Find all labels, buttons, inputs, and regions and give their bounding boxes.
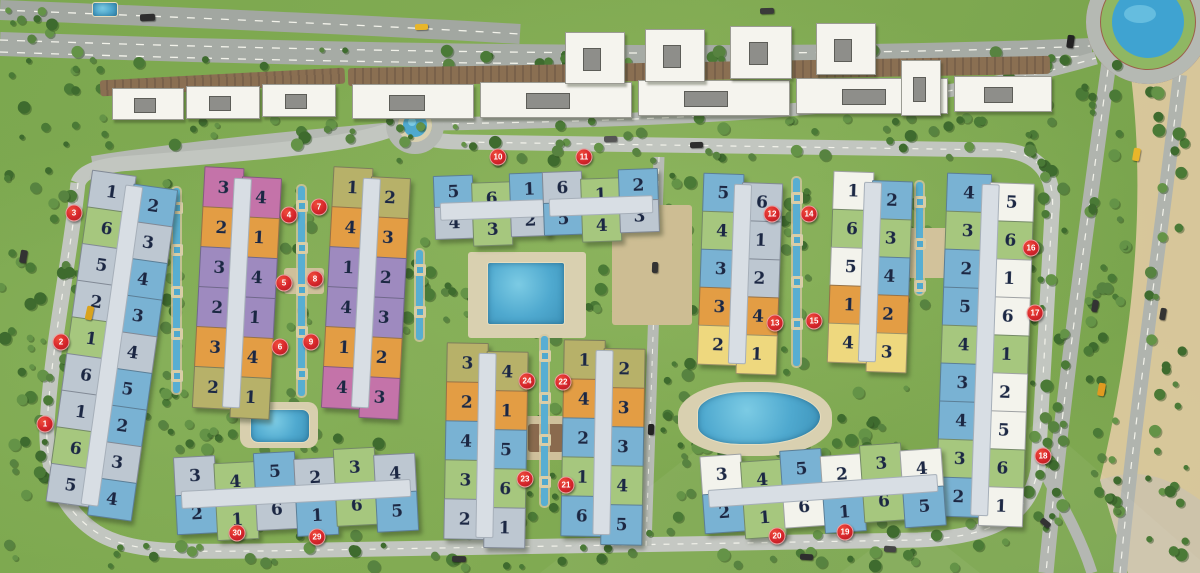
building-cluster-east-long: 453621564132453621 bbox=[935, 177, 1033, 522]
car-icon bbox=[604, 136, 617, 142]
rooftop-unit bbox=[684, 91, 728, 107]
commercial-building-7 bbox=[954, 76, 1052, 112]
plot-marker-3[interactable]: 3 bbox=[66, 205, 83, 222]
plot-marker-24[interactable]: 24 bbox=[519, 373, 536, 390]
plot-marker-19[interactable]: 19 bbox=[837, 524, 854, 541]
fountain-icon bbox=[414, 306, 426, 318]
fountain-icon bbox=[539, 434, 551, 446]
fountain-icon bbox=[171, 244, 183, 256]
fountain-icon bbox=[914, 280, 926, 292]
car-icon bbox=[652, 262, 658, 273]
plot-marker-1[interactable]: 1 bbox=[37, 416, 54, 433]
commercial-building-3 bbox=[352, 84, 474, 119]
building-cluster-south-center-west: 3421453621 bbox=[443, 346, 526, 542]
rooftop-unit bbox=[984, 87, 1013, 103]
fountain-icon bbox=[296, 200, 308, 212]
commercial-building-11 bbox=[816, 23, 876, 75]
rooftop-unit bbox=[389, 95, 425, 111]
plot-marker-23[interactable]: 23 bbox=[517, 471, 534, 488]
car-icon bbox=[884, 546, 896, 553]
plot-marker-18[interactable]: 18 bbox=[1035, 448, 1052, 465]
plot-marker-4[interactable]: 4 bbox=[281, 207, 298, 224]
car-icon bbox=[800, 554, 813, 561]
car-icon bbox=[690, 142, 703, 148]
commercial-building-2 bbox=[262, 84, 336, 117]
water-canal-4 bbox=[916, 182, 923, 294]
building-cluster-south-center-east: 1243231465 bbox=[560, 343, 643, 539]
rooftop-unit bbox=[583, 48, 601, 71]
fountain-icon bbox=[791, 276, 803, 288]
plot-marker-29[interactable]: 29 bbox=[309, 529, 326, 546]
car-icon bbox=[415, 24, 428, 30]
rooftop-unit bbox=[663, 45, 681, 68]
plot-marker-17[interactable]: 17 bbox=[1027, 305, 1044, 322]
commercial-building-12 bbox=[901, 60, 941, 116]
swimming-pool-3 bbox=[92, 2, 118, 17]
master-plan-map: 1263542314651263543421342134211243124312… bbox=[0, 0, 1200, 573]
plot-marker-11[interactable]: 11 bbox=[576, 149, 593, 166]
car-icon bbox=[452, 556, 466, 562]
car-icon bbox=[760, 8, 774, 14]
top-highway-2 bbox=[0, 44, 1092, 57]
fountain-icon bbox=[539, 392, 551, 404]
plot-marker-20[interactable]: 20 bbox=[769, 528, 786, 545]
car-icon bbox=[140, 14, 155, 22]
plot-marker-5[interactable]: 5 bbox=[276, 275, 293, 292]
rooftop-unit bbox=[134, 98, 156, 113]
rooftop-unit bbox=[834, 39, 852, 62]
building-core bbox=[475, 353, 496, 538]
water-canal-1 bbox=[298, 186, 305, 396]
swimming-pool-0 bbox=[487, 262, 565, 325]
plot-marker-13[interactable]: 13 bbox=[767, 315, 784, 332]
building-core bbox=[549, 195, 654, 217]
plot-marker-6[interactable]: 6 bbox=[272, 339, 289, 356]
rooftop-unit bbox=[209, 96, 231, 111]
water-canal-2 bbox=[416, 250, 423, 340]
plot-marker-12[interactable]: 12 bbox=[764, 206, 781, 223]
top-highway bbox=[0, 10, 520, 34]
rooftop-unit bbox=[285, 94, 307, 109]
rooftop-unit bbox=[749, 42, 768, 65]
building-cluster-purple-west: 342134213421 bbox=[192, 170, 280, 414]
plot-marker-22[interactable]: 22 bbox=[555, 374, 572, 391]
fountain-icon bbox=[791, 192, 803, 204]
plot-marker-30[interactable]: 30 bbox=[229, 525, 246, 542]
commercial-building-5 bbox=[638, 80, 790, 116]
water-canal-3 bbox=[793, 178, 800, 366]
fountain-icon bbox=[296, 284, 308, 296]
water-canal-5 bbox=[541, 336, 548, 506]
fountain-icon bbox=[914, 238, 926, 250]
fountain-icon bbox=[171, 286, 183, 298]
fountain-icon bbox=[296, 368, 308, 380]
rooftop-unit bbox=[913, 77, 926, 102]
plot-marker-8[interactable]: 8 bbox=[307, 271, 324, 288]
plot-marker-2[interactable]: 2 bbox=[53, 334, 70, 351]
commercial-building-10 bbox=[730, 26, 792, 79]
building-cluster-north-center-west: 561432 bbox=[433, 176, 549, 242]
plot-marker-7[interactable]: 7 bbox=[311, 199, 328, 216]
plot-marker-16[interactable]: 16 bbox=[1023, 240, 1040, 257]
fountain-icon bbox=[414, 264, 426, 276]
car-icon bbox=[648, 424, 654, 435]
building-cluster-east-center-east: 1263541243 bbox=[827, 175, 912, 368]
plot-marker-14[interactable]: 14 bbox=[801, 206, 818, 223]
commercial-building-9 bbox=[645, 29, 705, 82]
commercial-building-1 bbox=[186, 86, 260, 119]
commercial-building-0 bbox=[112, 88, 184, 120]
building-cluster-north-center-east: 612543 bbox=[542, 172, 658, 238]
rooftop-unit bbox=[842, 89, 886, 105]
rooftop-unit bbox=[526, 93, 570, 109]
plot-marker-9[interactable]: 9 bbox=[303, 334, 320, 351]
commercial-building-8 bbox=[565, 32, 625, 84]
plaza-deck-4 bbox=[908, 228, 948, 278]
building-core bbox=[440, 199, 545, 221]
fountain-icon bbox=[171, 328, 183, 340]
fountain-icon bbox=[791, 318, 803, 330]
fountain-icon bbox=[171, 370, 183, 382]
fountain-icon bbox=[791, 234, 803, 246]
fountain-icon bbox=[539, 476, 551, 488]
fountain-icon bbox=[539, 350, 551, 362]
building-cluster-south-east: 345234216165 bbox=[700, 444, 945, 537]
plot-marker-21[interactable]: 21 bbox=[558, 477, 575, 494]
building-core bbox=[592, 350, 613, 535]
plot-marker-10[interactable]: 10 bbox=[490, 149, 507, 166]
fountain-icon bbox=[914, 196, 926, 208]
building-cluster-south-west: 345234216165 bbox=[173, 449, 417, 537]
plot-marker-15[interactable]: 15 bbox=[806, 313, 823, 330]
building-cluster-purple-east: 124312431243 bbox=[321, 170, 409, 414]
fountain-icon bbox=[296, 242, 308, 254]
commercial-building-4 bbox=[480, 82, 632, 118]
